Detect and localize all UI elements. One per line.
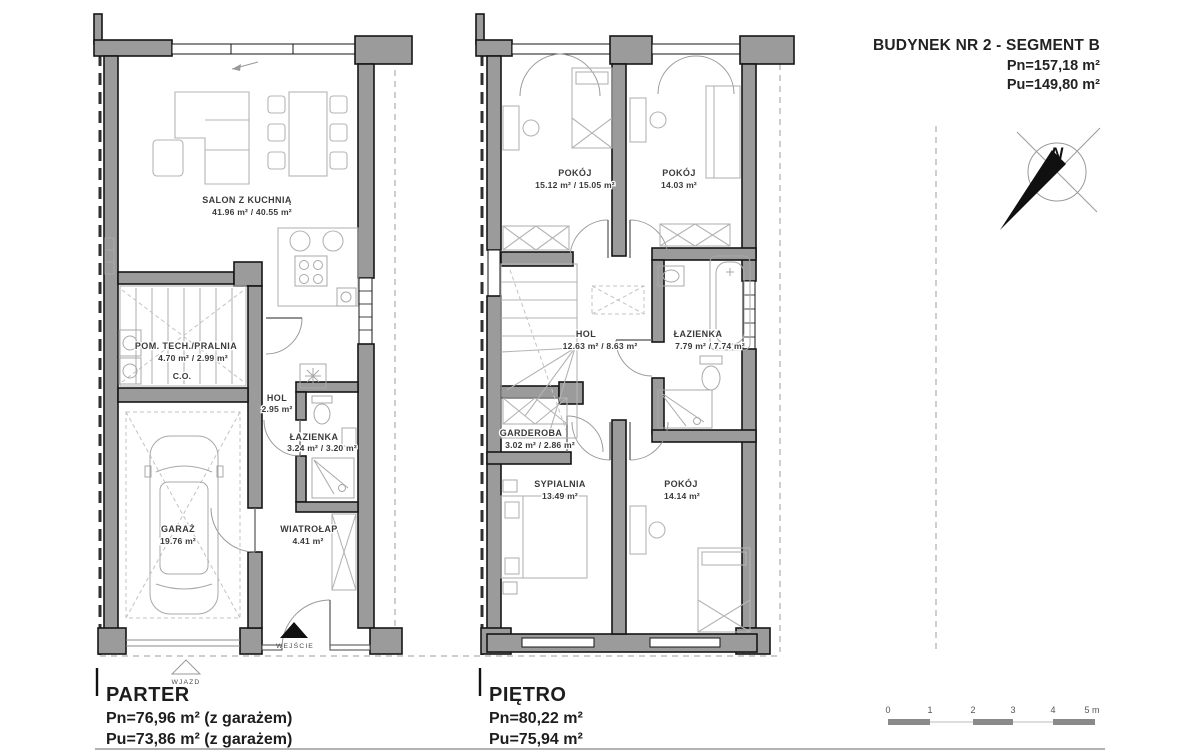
garage-envelope	[126, 412, 240, 618]
scale-segment	[973, 719, 1013, 725]
room-label-wiatrolap: WIATROŁAP	[280, 524, 337, 534]
scale-bar: 0 1 2 3 4 5 m	[885, 705, 1099, 725]
floor-name-pietro: PIĘTRO	[489, 684, 566, 706]
floorplan-sheet: WEJŚCIE WJAZD SALON Z KUCHNIĄ 41.96 m² /…	[0, 0, 1200, 755]
room-label-lazienka-parter: ŁAZIENKA	[290, 432, 339, 442]
stairs-pietro	[501, 264, 577, 438]
floor-pu-parter: Pu=73,86 m² (z garażem)	[106, 731, 292, 748]
desk-pokoj2	[630, 98, 666, 142]
entrance-marker-icon	[280, 622, 308, 638]
sofa-pokoj2	[706, 86, 740, 178]
armchair	[153, 140, 183, 176]
floor-pu-pietro: Pu=75,94 m²	[489, 731, 583, 748]
scale-segment	[1053, 719, 1095, 725]
dining-table	[268, 92, 347, 176]
room-area-lazienka-parter: 3.24 m² / 3.20 m²	[287, 443, 357, 453]
sink-icon	[337, 288, 356, 306]
parter-walls	[94, 14, 412, 654]
room-area-pokoj2: 14.03 m²	[661, 180, 697, 190]
wardrobe-pokoj2	[660, 224, 730, 246]
scale-tick-3: 3	[1010, 705, 1015, 715]
desk-pokoj3	[630, 506, 665, 554]
room-note-co: C.O.	[173, 371, 191, 381]
room-area-garaz: 19.76 m²	[160, 536, 196, 546]
room-area-hol-parter: 2.95 m²	[261, 404, 292, 414]
sheet-title: BUDYNEK NR 2 - SEGMENT B	[873, 37, 1100, 54]
hatch-icon	[592, 286, 644, 314]
scale-segment	[888, 719, 930, 725]
room-label-pokoj3: POKÓJ	[664, 478, 698, 489]
room-label-hol-pietro: HOL	[576, 329, 596, 339]
toilet-icon	[312, 396, 332, 424]
floor-pn-pietro: Pn=80,22 m²	[489, 710, 583, 727]
floorplan-drawing: WEJŚCIE WJAZD SALON Z KUCHNIĄ 41.96 m² /…	[0, 0, 1200, 755]
sofa	[175, 92, 249, 184]
room-area-pokoj1: 15.12 m² / 15.05 m²	[535, 180, 615, 190]
north-label: N	[1051, 144, 1064, 163]
room-area-hol-pietro: 12.63 m² / 8.63 m²	[563, 341, 638, 351]
sheet-pu: Pu=149,80 m²	[1007, 77, 1100, 93]
shower-icon	[312, 458, 354, 498]
floor-pn-parter: Pn=76,96 m² (z garażem)	[106, 710, 292, 727]
scale-tick-2: 2	[970, 705, 975, 715]
compass-icon: N	[1000, 128, 1100, 230]
desk-pokoj1	[503, 106, 539, 150]
room-label-sypialnia: SYPIALNIA	[534, 479, 586, 489]
scale-tick-5: 5 m	[1084, 705, 1099, 715]
floor-name-parter: PARTER	[106, 684, 190, 706]
title-block: BUDYNEK NR 2 - SEGMENT B Pn=157,18 m² Pu…	[873, 37, 1100, 93]
shower-icon-2	[658, 390, 712, 428]
room-label-hol-parter: HOL	[267, 393, 287, 403]
room-label-pralnia: POM. TECH./PRALNIA	[135, 341, 237, 351]
room-label-pokoj2: POKÓJ	[662, 167, 696, 178]
room-area-wiatrolap: 4.41 m²	[292, 536, 323, 546]
room-label-pokoj1: POKÓJ	[558, 167, 592, 178]
room-area-sypialnia: 13.49 m²	[542, 491, 578, 501]
room-label-salon: SALON Z KUCHNIĄ	[202, 195, 292, 205]
scale-tick-0: 0	[885, 705, 890, 715]
sheet-pn: Pn=157,18 m²	[1007, 58, 1100, 74]
kitchen-counter	[278, 228, 358, 306]
direction-arrow-icon	[232, 62, 258, 71]
room-label-garderoba: GARDEROBA	[500, 428, 563, 438]
pietro-label-block: PIĘTRO Pn=80,22 m² Pu=75,94 m²	[480, 668, 583, 748]
room-area-lazienka-pietro: 7.79 m² / 7.74 m²	[675, 341, 745, 351]
toilet-icon-2	[700, 356, 722, 390]
wardrobe-pokoj1	[503, 226, 569, 250]
room-area-salon: 41.96 m² / 40.55 m²	[212, 207, 292, 217]
room-label-lazienka-pietro: ŁAZIENKA	[674, 329, 723, 339]
bed-pokoj1	[572, 68, 612, 148]
pietro-plan: POKÓJ 15.12 m² / 15.05 m² POKÓJ 14.03 m²…	[476, 14, 936, 658]
scale-tick-4: 4	[1050, 705, 1055, 715]
room-area-pokoj3: 14.14 m²	[664, 491, 700, 501]
scale-tick-1: 1	[927, 705, 932, 715]
room-label-garaz: GARAŻ	[161, 524, 195, 534]
room-area-pralnia: 4.70 m² / 2.99 m²	[158, 353, 228, 363]
driveway-marker-icon	[172, 660, 200, 674]
room-area-garderoba: 3.02 m² / 2.86 m²	[505, 440, 575, 450]
entrance-label: WEJŚCIE	[276, 641, 314, 650]
